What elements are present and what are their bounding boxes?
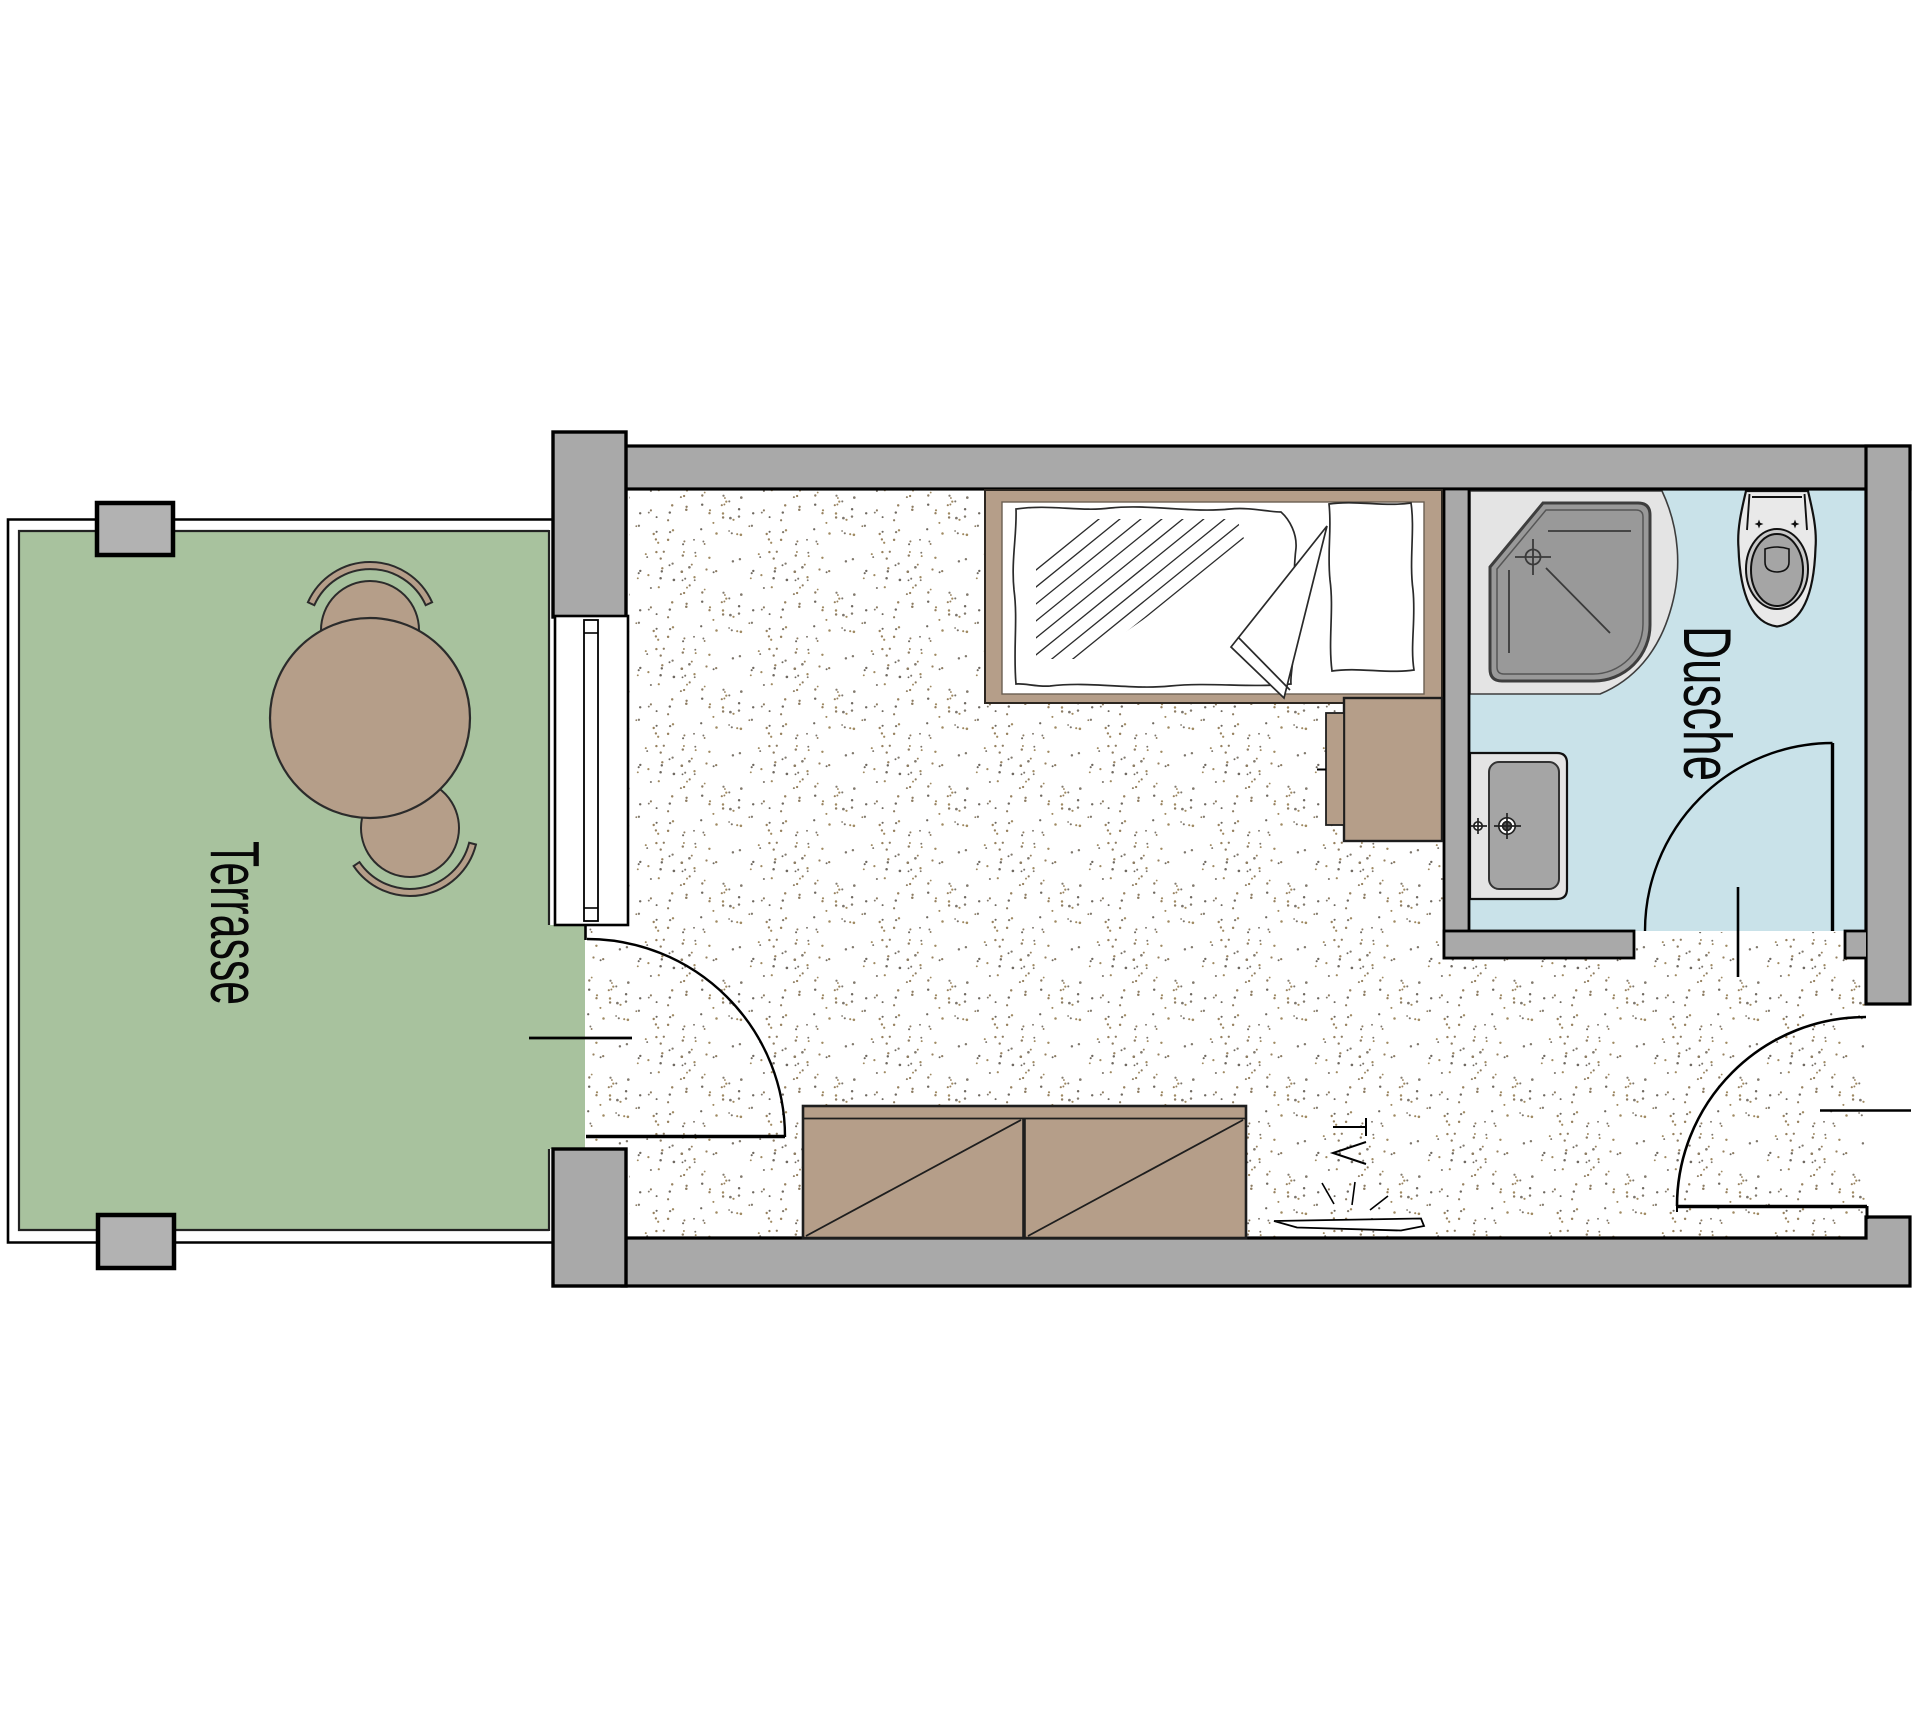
svg-text:Dusche: Dusche xyxy=(1669,626,1745,781)
svg-text:Terrasse: Terrasse xyxy=(196,841,274,1005)
